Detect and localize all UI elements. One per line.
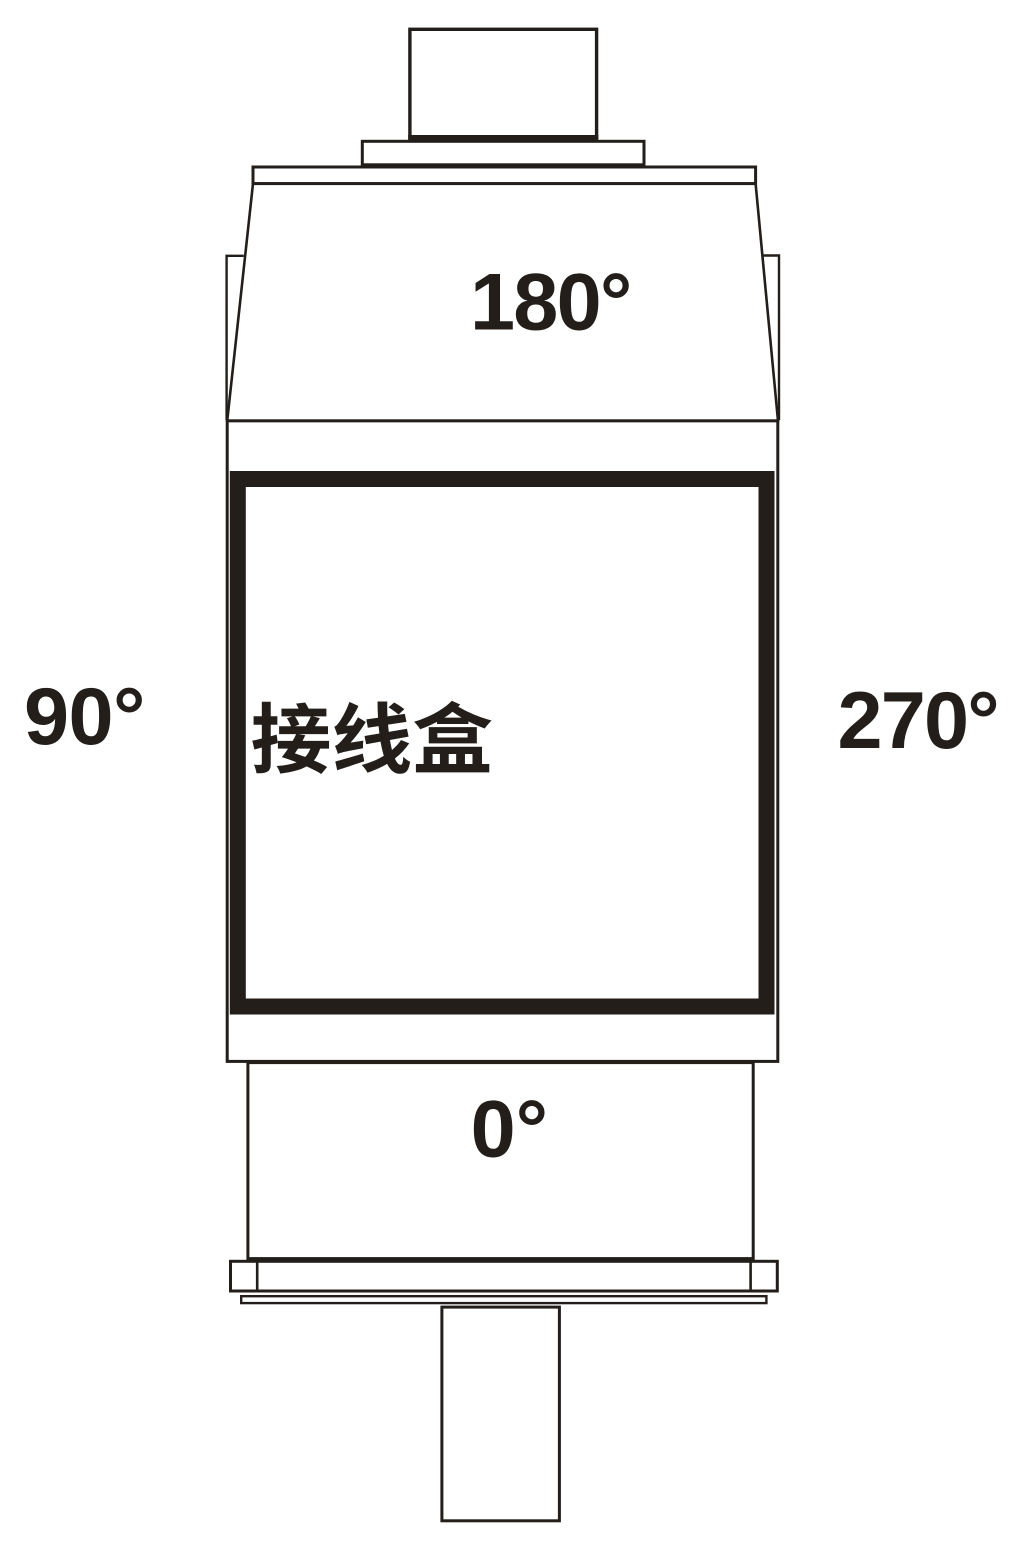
svg-text:270°: 270°	[838, 676, 1000, 766]
svg-text:180°: 180°	[470, 258, 632, 348]
svg-text:90°: 90°	[24, 672, 145, 762]
svg-text:0°: 0°	[471, 1085, 548, 1175]
